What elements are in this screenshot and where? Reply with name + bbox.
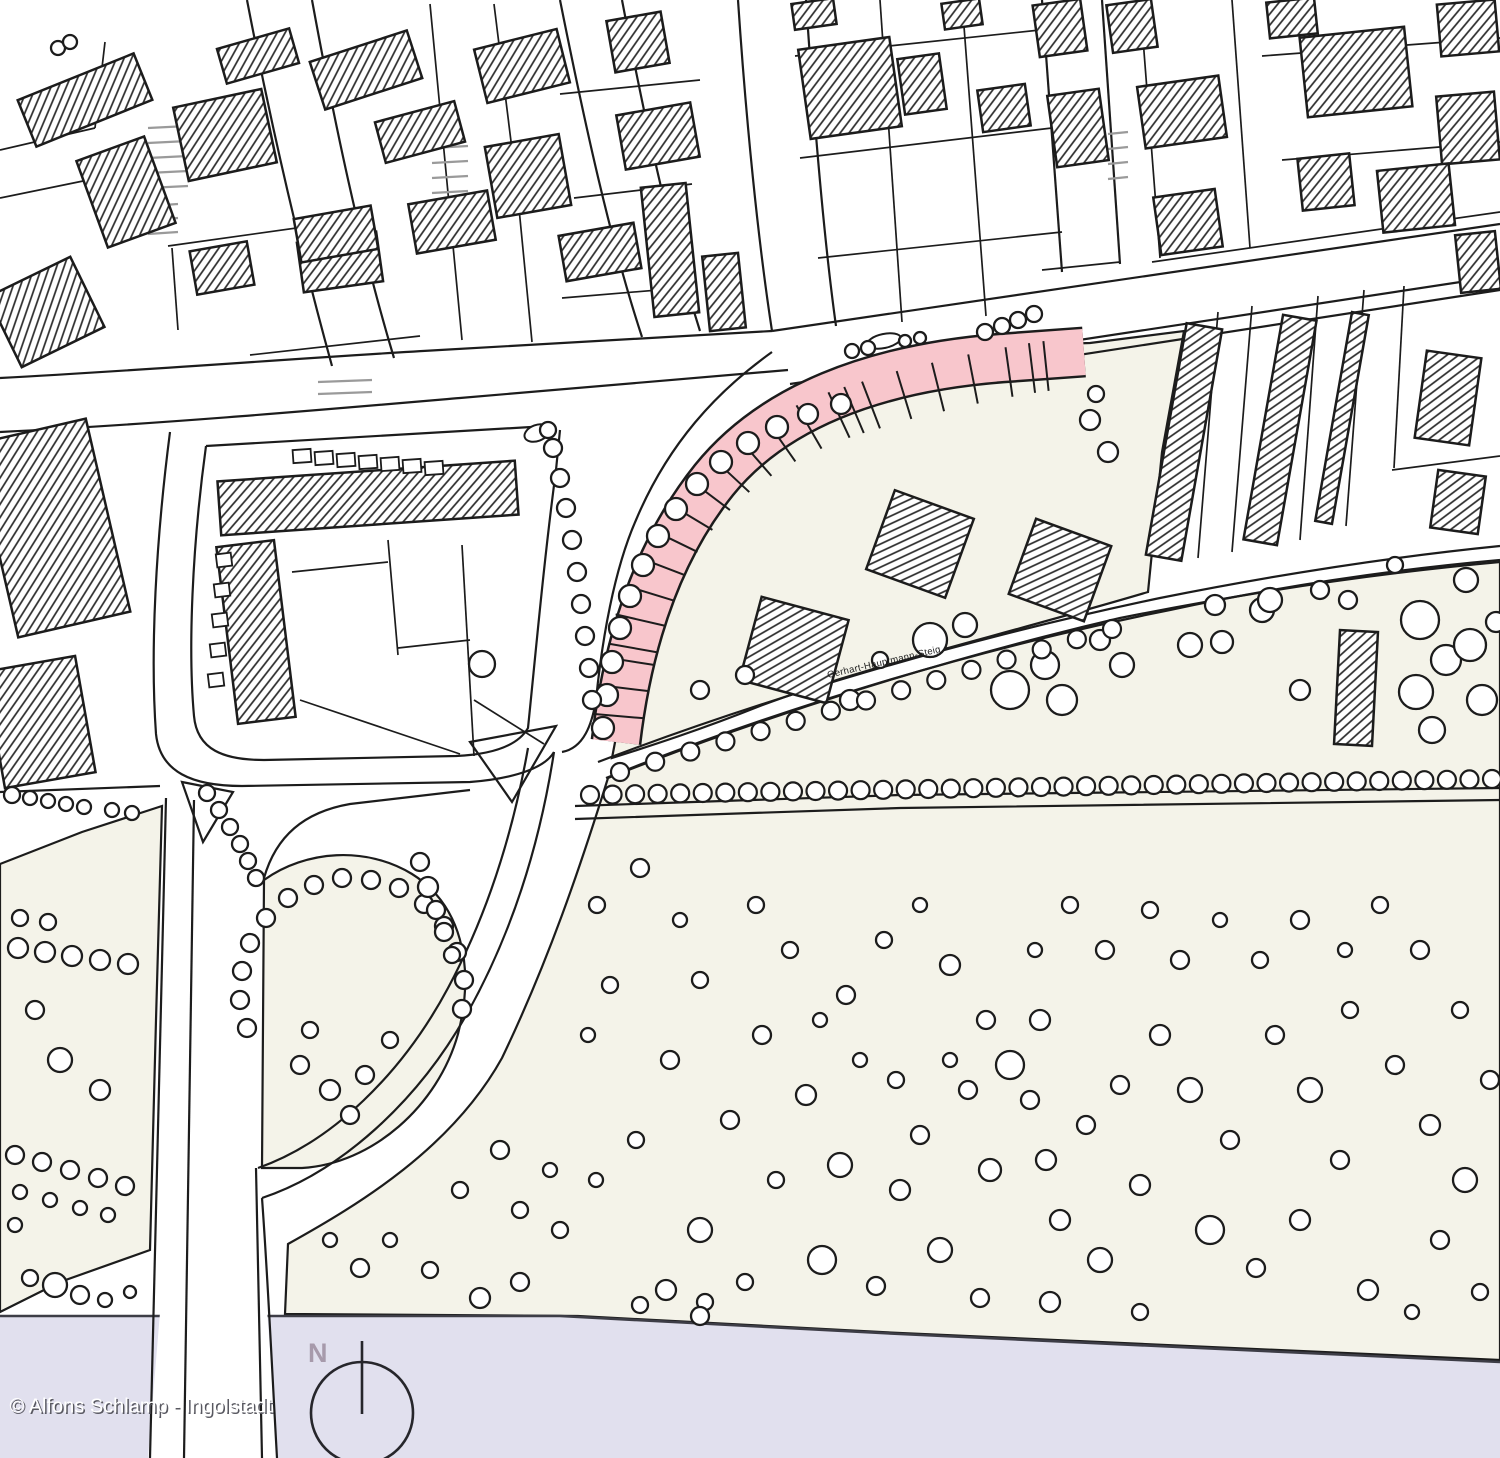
site-plan-map: Gerhart-Hauptmann-Steig N © Alfons Schla… bbox=[0, 0, 1500, 1458]
copyright-text: © Alfons Schlamp - Ingolstadt bbox=[10, 1396, 273, 1418]
copyright-label: © Alfons Schlamp - Ingolstadt © Alfons S… bbox=[10, 1396, 275, 1420]
generated-map-layers bbox=[0, 0, 1500, 1458]
north-label: N bbox=[308, 1338, 328, 1368]
site-plan-page: Gerhart-Hauptmann-Steig N © Alfons Schla… bbox=[0, 0, 1500, 1458]
